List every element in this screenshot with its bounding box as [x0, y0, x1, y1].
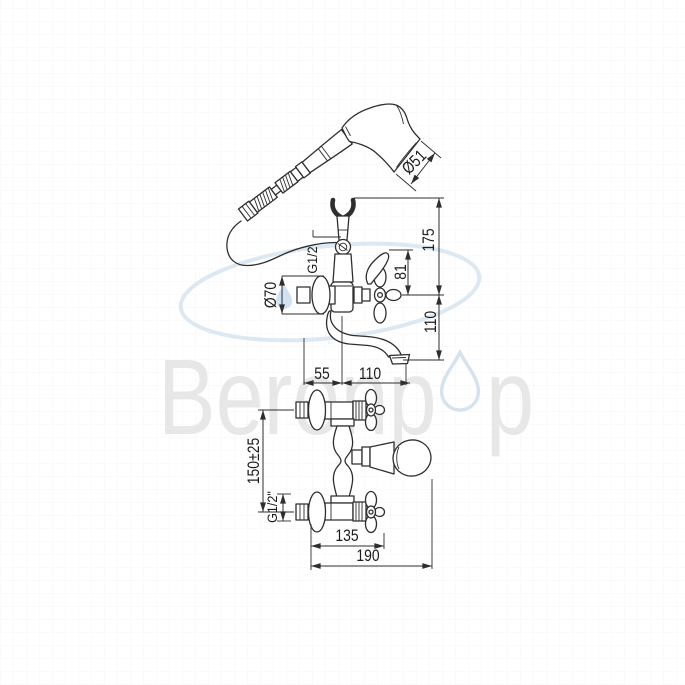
- cradle-wall-mount: [336, 240, 351, 255]
- product-spec-image: Berenp p: [0, 0, 685, 685]
- column-plate-bottom: [331, 496, 354, 503]
- shower-handle: [301, 130, 353, 175]
- aerator: [390, 355, 410, 365]
- wall-escutcheon: [312, 276, 330, 314]
- dim-label-110-horizontal: 110: [359, 365, 382, 384]
- dim-label-135: 135: [335, 527, 358, 546]
- cradle-fork: [332, 200, 353, 240]
- dim-label-81: 81: [392, 264, 411, 279]
- dim-label-55: 55: [314, 365, 329, 384]
- dim-label-190: 190: [356, 547, 380, 566]
- droplet-letter-icon: [442, 353, 479, 411]
- dim-label-110-vertical: 110: [422, 311, 441, 334]
- brand-watermark-part2: p: [486, 336, 534, 457]
- dim-label-g12-bottom: G1/2": [264, 491, 280, 523]
- column-plate-top: [331, 419, 354, 426]
- dim-label-o70: Ø70: [262, 282, 281, 309]
- dim-label-g12-front: G1/2: [304, 246, 320, 273]
- dim-label-175: 175: [420, 228, 439, 251]
- wall-union-nut: [297, 287, 310, 303]
- cross-handle-bottom: [366, 492, 385, 533]
- hand-shower-assembly: [227, 104, 420, 265]
- technical-drawing: Berenp p: [0, 0, 685, 685]
- column-body: [333, 426, 352, 497]
- mixer-body-neck: [333, 254, 353, 282]
- dim-label-150: 150±25: [245, 438, 264, 484]
